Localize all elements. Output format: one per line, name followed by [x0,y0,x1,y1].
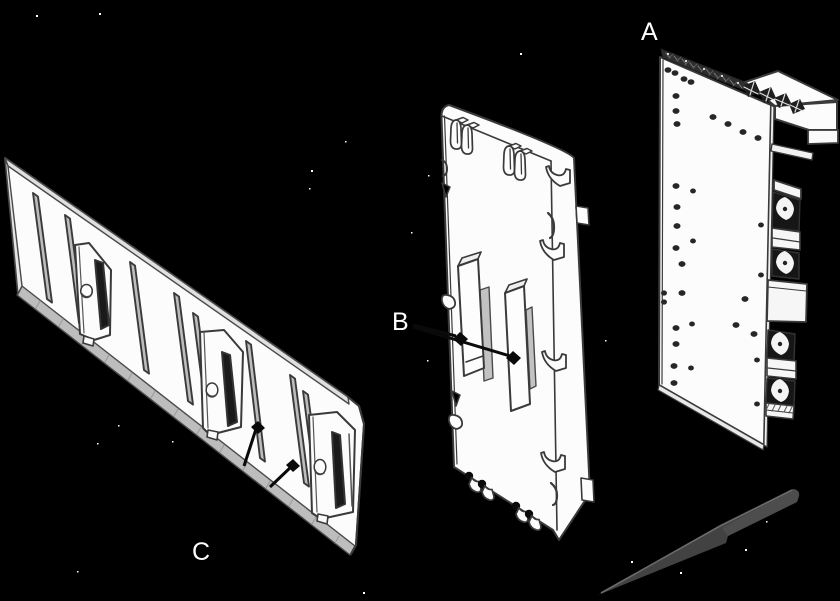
svg-text:B: B [392,308,409,336]
svg-text:C: C [192,538,210,566]
svg-text:A: A [641,18,658,46]
